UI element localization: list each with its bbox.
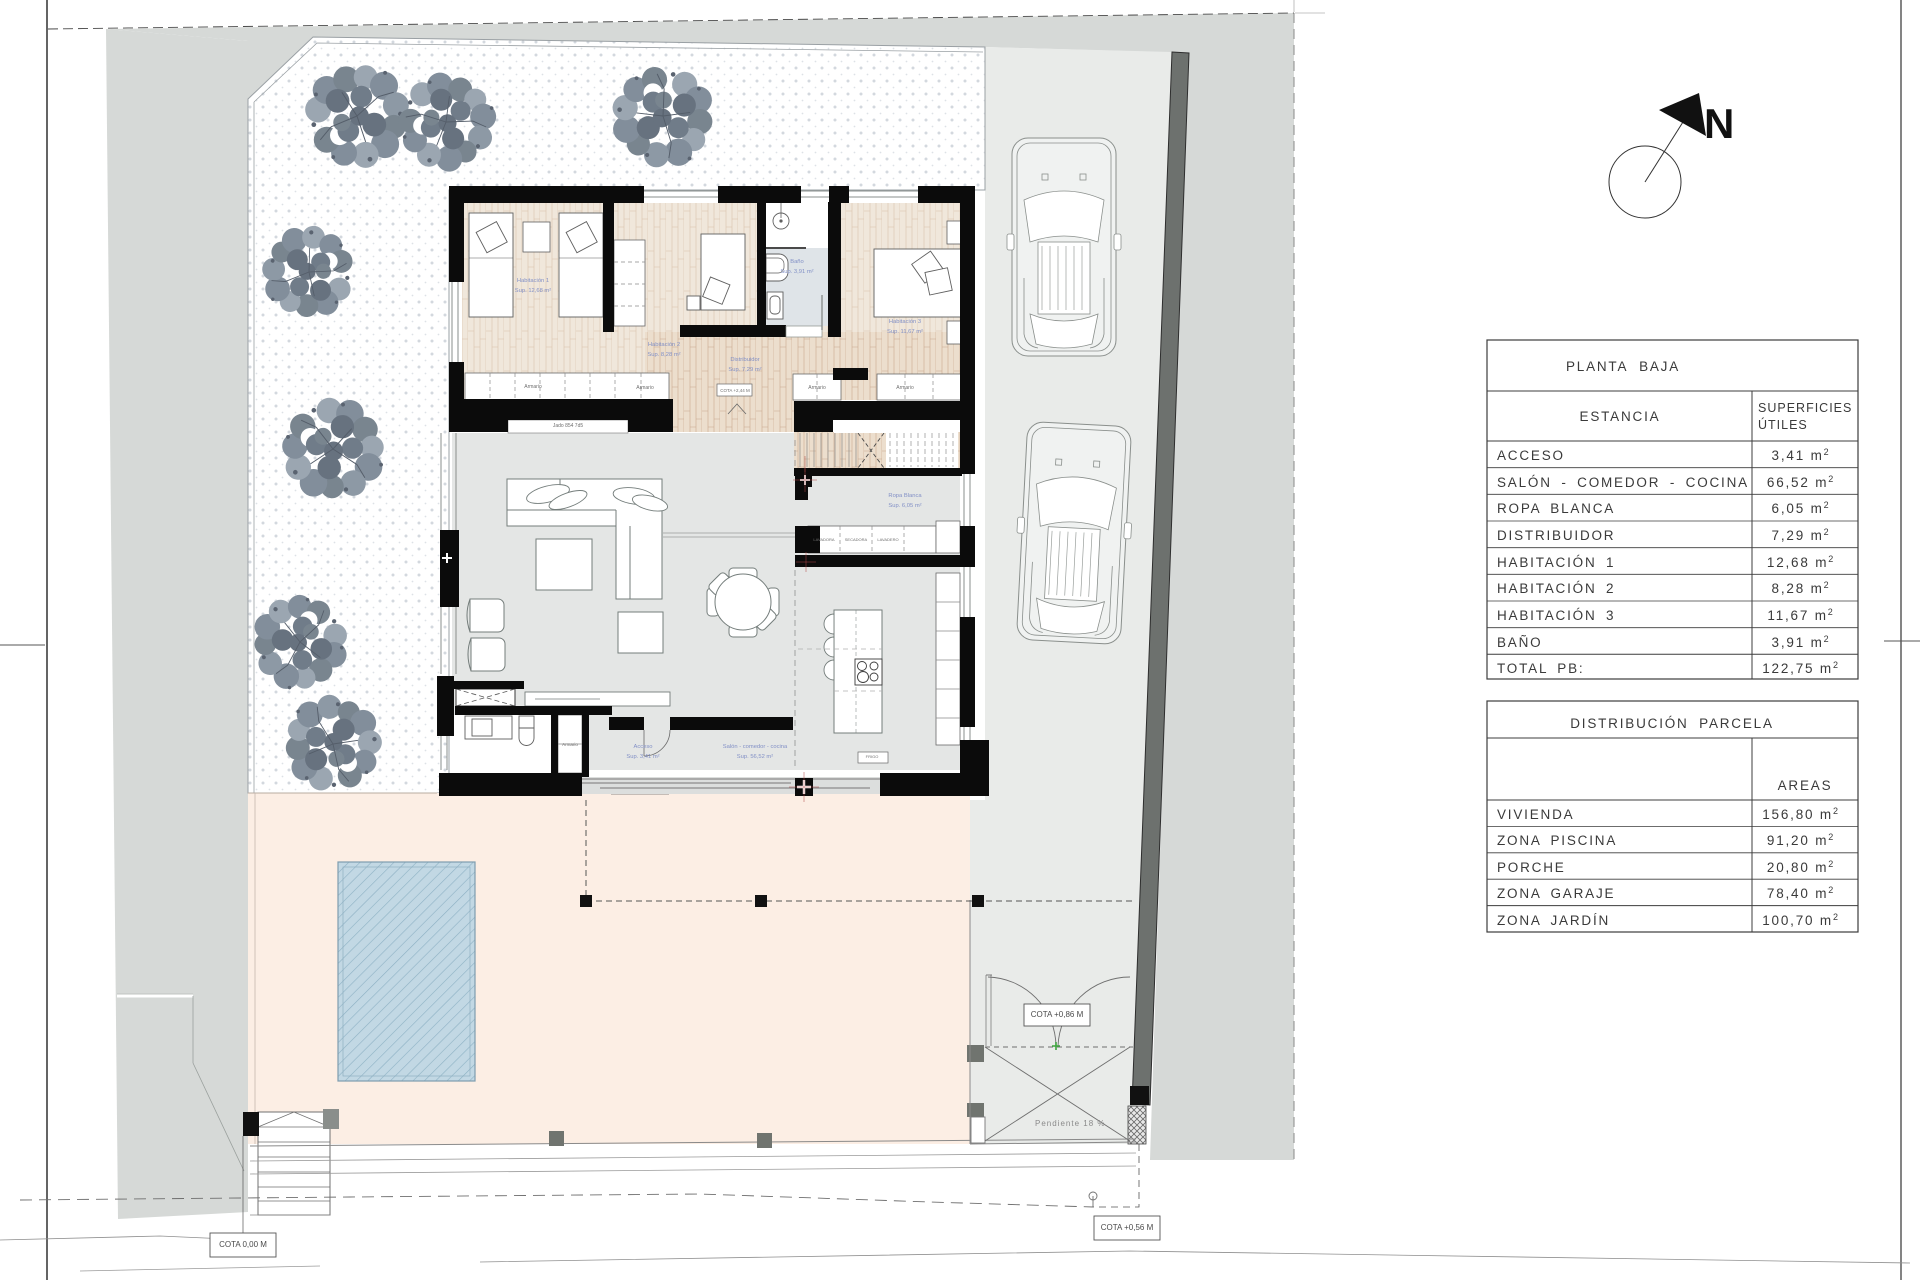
svg-text:Sup. 6,05 m²: Sup. 6,05 m² xyxy=(888,503,921,509)
svg-text:20,80 m2: 20,80 m2 xyxy=(1767,859,1835,875)
svg-text:6,05 m2: 6,05 m2 xyxy=(1772,500,1831,516)
svg-text:Sup. 3,41 m²: Sup. 3,41 m² xyxy=(626,754,659,760)
svg-text:LAVADERO: LAVADERO xyxy=(877,537,898,542)
svg-text:ZONA JARDÍN: ZONA JARDÍN xyxy=(1497,913,1610,928)
svg-text:ESTANCIA: ESTANCIA xyxy=(1580,409,1661,424)
svg-text:ZONA PISCINA: ZONA PISCINA xyxy=(1497,833,1617,848)
svg-text:AREAS: AREAS xyxy=(1778,778,1833,793)
svg-text:Armario: Armario xyxy=(524,384,542,390)
svg-text:Pendiente 18 %: Pendiente 18 % xyxy=(1035,1119,1106,1128)
svg-text:Armario: Armario xyxy=(636,385,654,391)
svg-text:Sup. 3,91 m²: Sup. 3,91 m² xyxy=(780,269,813,275)
svg-text:Sup. 8,28 m²: Sup. 8,28 m² xyxy=(647,352,680,358)
svg-text:Acceso: Acceso xyxy=(633,744,652,750)
svg-text:Armario: Armario xyxy=(562,742,578,747)
svg-text:FRIGO: FRIGO xyxy=(866,754,879,759)
svg-text:Armario: Armario xyxy=(808,385,826,391)
svg-text:HABITACIÓN 2: HABITACIÓN 2 xyxy=(1497,581,1615,596)
svg-text:11,67 m2: 11,67 m2 xyxy=(1767,607,1834,623)
svg-text:ÚTILES: ÚTILES xyxy=(1758,417,1808,432)
svg-text:COTA +2,44 M: COTA +2,44 M xyxy=(720,388,750,393)
svg-text:ACCESO: ACCESO xyxy=(1497,448,1565,463)
svg-text:Sup. 56,52 m²: Sup. 56,52 m² xyxy=(737,754,773,760)
svg-text:N: N xyxy=(1704,100,1734,147)
svg-text:HABITACIÓN 3: HABITACIÓN 3 xyxy=(1497,608,1615,623)
svg-text:SALÓN - COMEDOR - COCINA: SALÓN - COMEDOR - COCINA xyxy=(1497,475,1749,490)
svg-text:Jado 854 7d5: Jado 854 7d5 xyxy=(553,423,584,429)
svg-text:HABITACIÓN 1: HABITACIÓN 1 xyxy=(1497,555,1615,570)
svg-text:91,20 m2: 91,20 m2 xyxy=(1767,832,1835,848)
svg-text:COTA 0,00 M: COTA 0,00 M xyxy=(219,1240,267,1249)
svg-text:7,29 m2: 7,29 m2 xyxy=(1772,527,1831,543)
svg-text:122,75 m2: 122,75 m2 xyxy=(1762,660,1840,676)
svg-text:Sup. 7,29 m²: Sup. 7,29 m² xyxy=(728,367,761,373)
svg-text:PLANTA BAJA: PLANTA BAJA xyxy=(1566,359,1680,374)
svg-text:SECADORA: SECADORA xyxy=(845,537,868,542)
svg-text:Habitación 1: Habitación 1 xyxy=(517,278,549,284)
svg-text:BAÑO: BAÑO xyxy=(1497,635,1542,650)
svg-text:Sup. 11,67 m²: Sup. 11,67 m² xyxy=(887,329,923,335)
svg-text:Baño: Baño xyxy=(790,259,804,265)
svg-text:156,80 m2: 156,80 m2 xyxy=(1762,806,1840,822)
svg-text:3,91 m2: 3,91 m2 xyxy=(1772,634,1831,650)
svg-text:66,52 m2: 66,52 m2 xyxy=(1767,474,1835,490)
svg-text:78,40 m2: 78,40 m2 xyxy=(1767,885,1835,901)
svg-text:PORCHE: PORCHE xyxy=(1497,860,1566,875)
svg-text:12,68 m2: 12,68 m2 xyxy=(1767,554,1835,570)
svg-text:TOTAL PB:: TOTAL PB: xyxy=(1497,661,1584,676)
svg-text:Armario: Armario xyxy=(896,385,914,391)
svg-text:DISTRIBUIDOR: DISTRIBUIDOR xyxy=(1497,528,1615,543)
svg-text:Habitación 3: Habitación 3 xyxy=(889,319,921,325)
svg-text:Salón - comedor - cocina: Salón - comedor - cocina xyxy=(723,744,788,750)
svg-text:DISTRIBUCIÓN PARCELA: DISTRIBUCIÓN PARCELA xyxy=(1570,716,1774,731)
svg-text:VIVIENDA: VIVIENDA xyxy=(1497,807,1574,822)
svg-text:100,70 m2: 100,70 m2 xyxy=(1762,912,1840,928)
svg-text:ROPA BLANCA: ROPA BLANCA xyxy=(1497,501,1615,516)
svg-text:LAVADORA: LAVADORA xyxy=(813,537,835,542)
svg-text:COTA +0,86 M: COTA +0,86 M xyxy=(1031,1010,1084,1019)
svg-text:ZONA GARAJE: ZONA GARAJE xyxy=(1497,886,1615,901)
svg-text:3,41 m2: 3,41 m2 xyxy=(1772,447,1831,463)
svg-text:Habitación 2: Habitación 2 xyxy=(648,342,680,348)
svg-text:Ropa Blanca: Ropa Blanca xyxy=(888,493,922,499)
svg-text:SUPERFICIES: SUPERFICIES xyxy=(1758,401,1852,415)
svg-text:Distribuidor: Distribuidor xyxy=(730,357,759,363)
svg-text:8,28 m2: 8,28 m2 xyxy=(1772,580,1831,596)
svg-text:Sup. 12,68 m²: Sup. 12,68 m² xyxy=(515,288,551,294)
svg-text:COTA +0,56 M: COTA +0,56 M xyxy=(1101,1223,1154,1232)
